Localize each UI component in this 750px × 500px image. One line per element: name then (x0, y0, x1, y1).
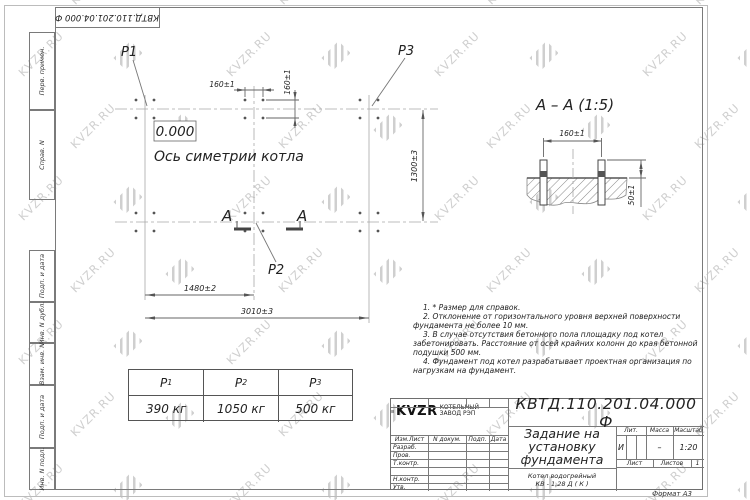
stamp-perv-primen: Перв. примен. (29, 32, 55, 110)
load-table-header-p3: P3 (278, 370, 352, 395)
drawing-sheet: KVZR.RUKVZR.RUKVZR.RUKVZR.RUKVZR.RUKVZR.… (0, 0, 750, 500)
format-label: Формат А3 (636, 490, 708, 499)
mass-header: Масса (646, 426, 673, 435)
note-4: 4. Фундамент под котел разрабатывает про… (413, 357, 705, 375)
doc-title: Задание на установку фундамента (508, 426, 616, 467)
sheets-value: 1 (691, 459, 704, 467)
doc-number-top-box: КВТД.110.201.04.000 Ф (55, 7, 160, 28)
rev-header-izm-list: Изм.Лист (391, 435, 428, 443)
note-1: 1. * Размер для справок. (413, 303, 705, 312)
load-table-header-p1: P1 (129, 370, 203, 395)
sign-row-prov: Пров. (393, 452, 410, 459)
load-table: P1 P2 P3 390 кг 1050 кг 500 кг (128, 369, 353, 421)
sign-row-utv: Утв. (393, 484, 406, 491)
designation: КВТД.110.201.04.000 Ф (508, 399, 704, 426)
sign-row-razrab: Разраб. (393, 444, 417, 451)
load-value-p2: 1050 кг (203, 396, 277, 422)
sheet-label: Лист (616, 459, 653, 467)
notes-block: 1. * Размер для справок. 2. Отклонение о… (413, 303, 705, 375)
scale-value: 1:20 (673, 435, 704, 459)
rev-header-n-dokum: N докум. (428, 435, 466, 443)
kvzr-coil-icon (391, 404, 394, 419)
load-value-p1: 390 кг (129, 396, 203, 422)
sign-row-nkontr: Н.контр. (393, 476, 420, 483)
mass-value: – (646, 435, 673, 459)
stamp-inv-dubl: Инв. N дубл. (29, 302, 55, 343)
scale-header: Масштаб (673, 426, 704, 435)
note-2: 2. Отклонение от горизонтального уровня … (413, 312, 705, 330)
lit-value: И (616, 435, 626, 459)
stamp-sprav-n: Справ. N (29, 110, 55, 200)
rev-header-data: Дата (489, 435, 508, 443)
stamp-podp-data-1: Подп. и дата (29, 250, 55, 302)
rev-header-podp: Подп. (466, 435, 489, 443)
load-value-p3: 500 кг (278, 396, 352, 422)
stamp-podp-data-2: Подп. и дата (29, 385, 55, 448)
sheets-label: Листов (653, 459, 691, 467)
doc-number-top: КВТД.110.201.04.000 Ф (55, 12, 159, 22)
load-table-header-p2: P2 (203, 370, 277, 395)
load-table-value-row: 390 кг 1050 кг 500 кг (129, 396, 352, 422)
product-name: Котел водогрейный КВ - 1,28 Д ( К ) (508, 468, 616, 491)
title-block: КВТД.110.201.04.000 Ф Изм.Лист N докум. … (390, 398, 703, 490)
load-table-header-row: P1 P2 P3 (129, 370, 352, 396)
lit-header: Лит. (616, 426, 646, 435)
sign-row-tkontr: Т.контр. (393, 460, 419, 467)
note-3: 3. В случае отсутствия бетонного пола пл… (413, 330, 705, 357)
stamp-inv-podl: Инв. N подл. (29, 448, 55, 490)
kvzr-logo-text: KVZR (396, 404, 438, 419)
stamp-vzam-inv: Взам. инв. N (29, 343, 55, 385)
